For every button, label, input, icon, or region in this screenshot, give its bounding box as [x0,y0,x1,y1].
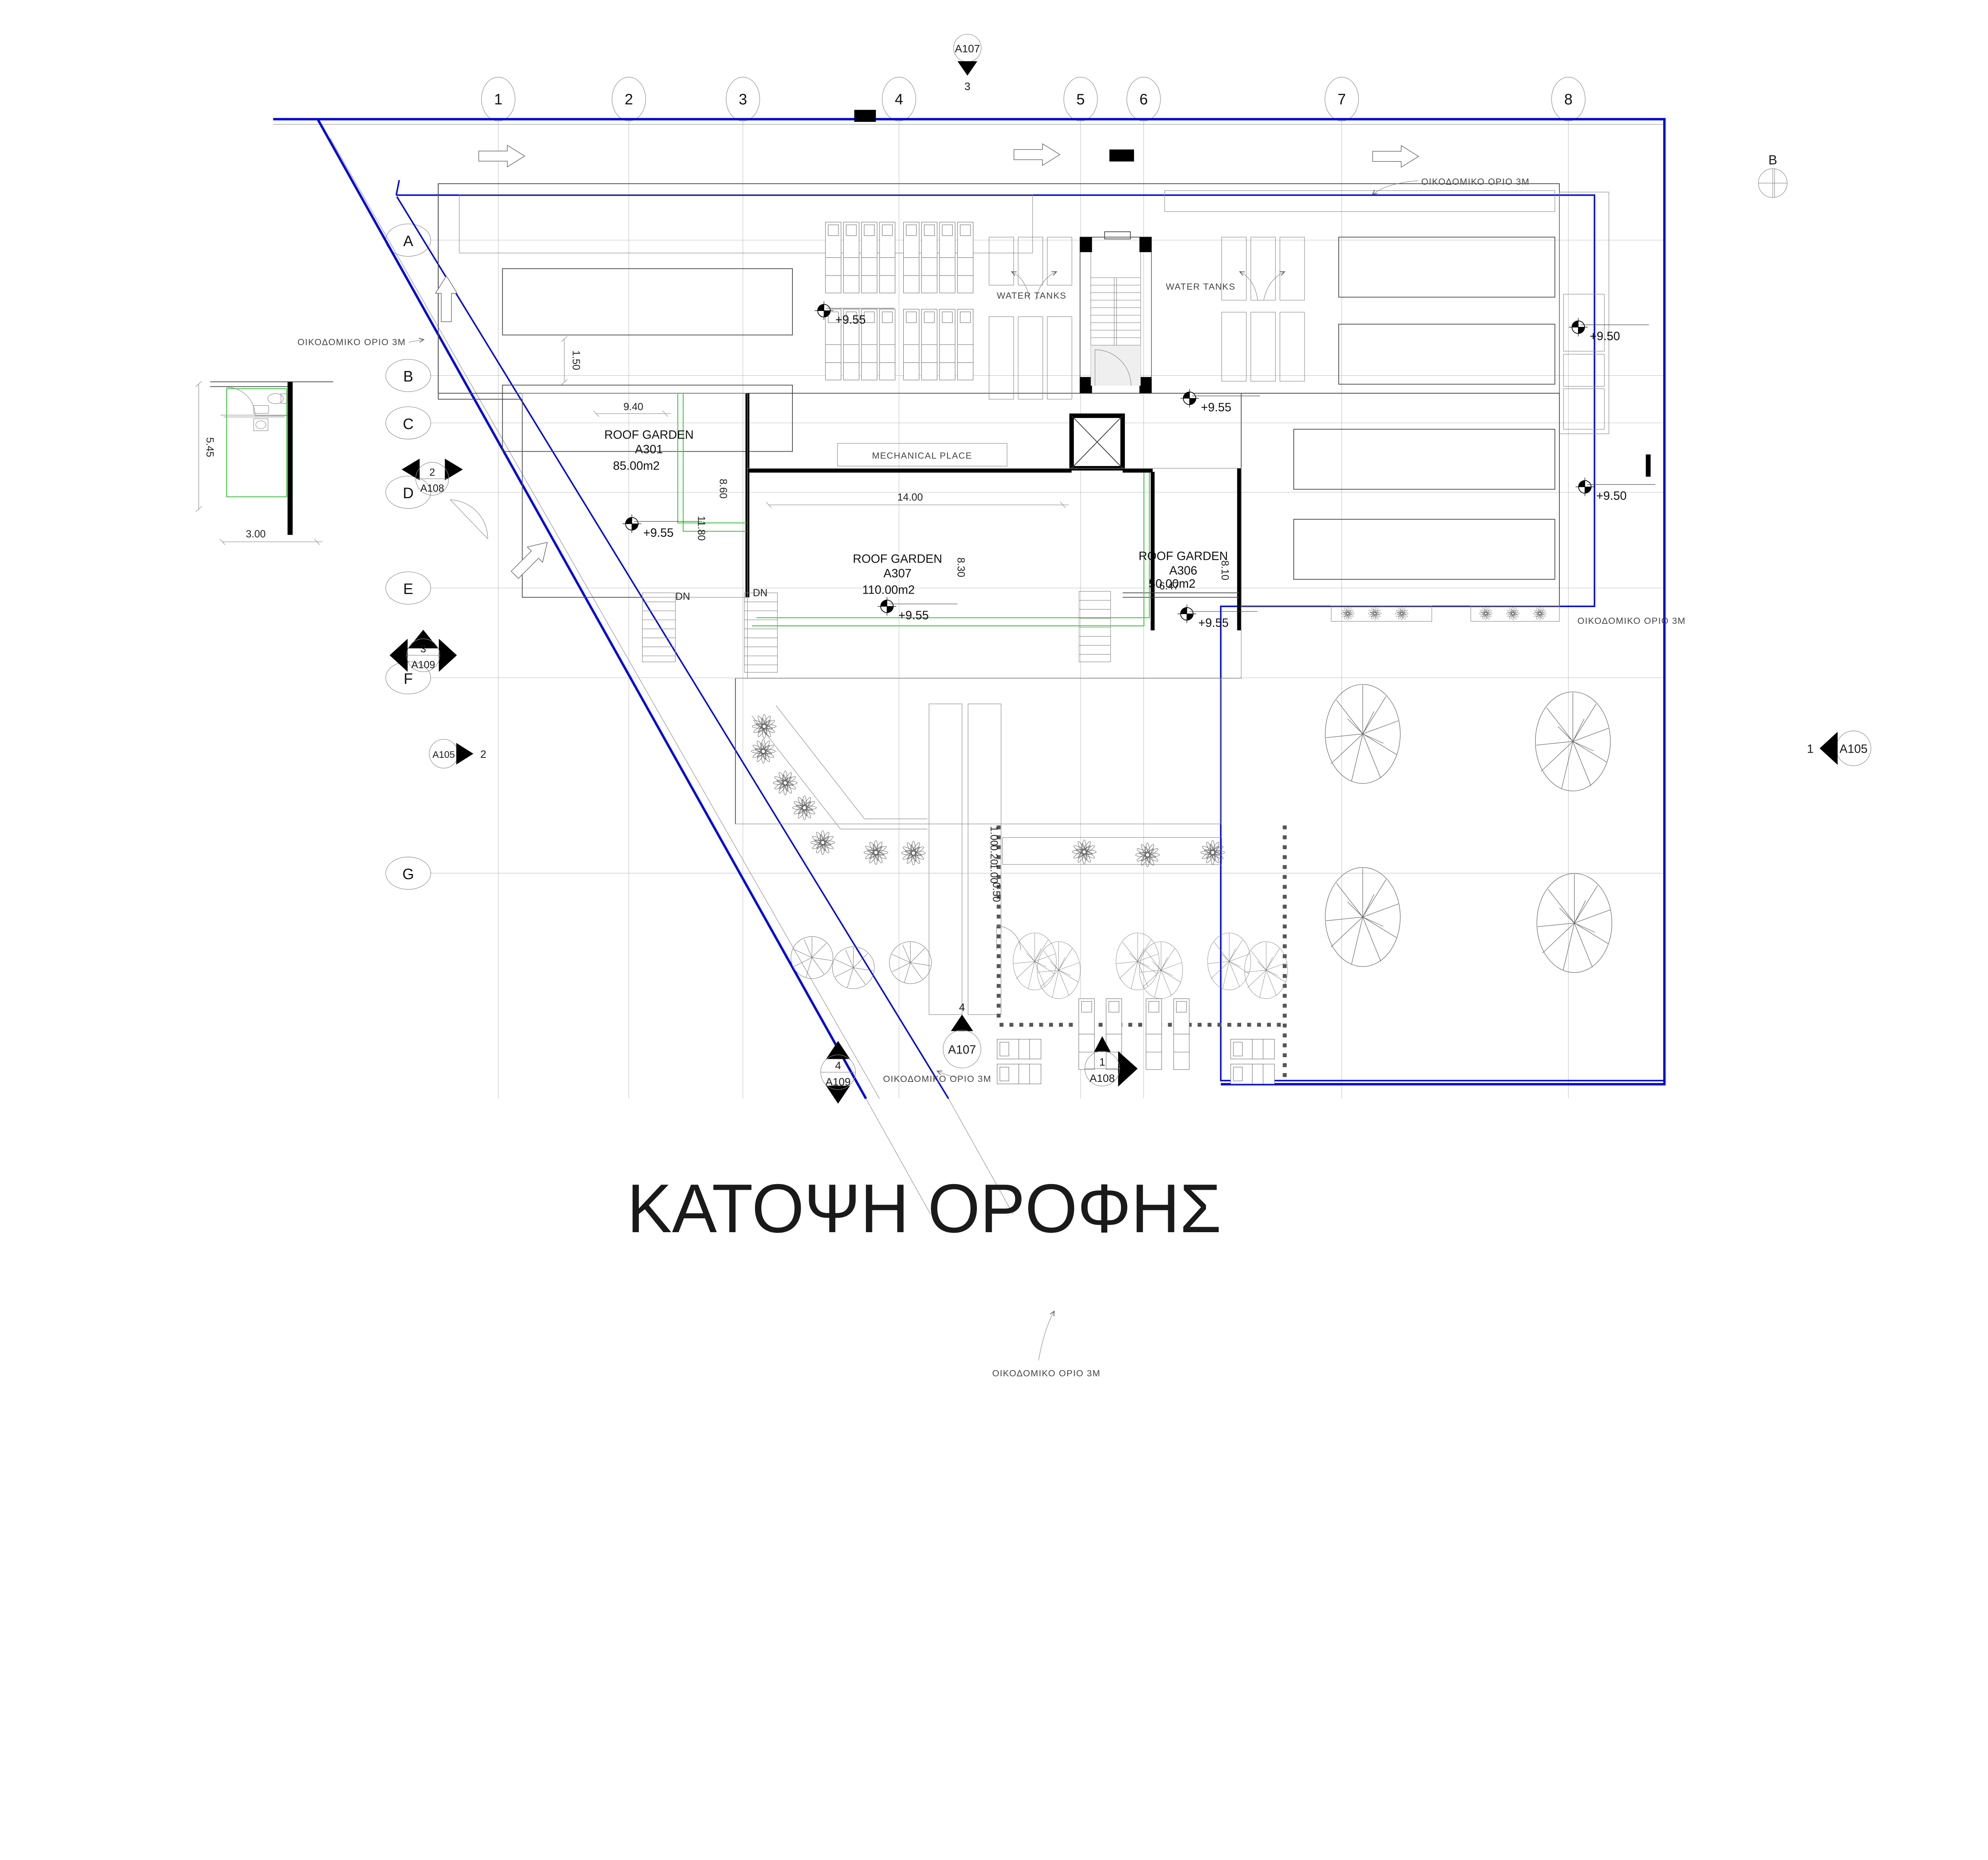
water-tanks-label-left: WATER TANKS [997,291,1066,301]
dim-020: 0.20 [988,845,999,865]
dim-940: 9.40 [623,401,643,412]
lower-terrace [736,678,1221,824]
water-tanks-right [1222,237,1305,381]
plant-icon [1368,607,1381,620]
dim-300: 3.00 [246,528,266,540]
garden-lounger [1231,1039,1274,1059]
boundary-note-text: ΟΙΚΟΔΟΜΙΚΟ ΟΡΙΟ 3Μ [297,337,406,347]
marker-num: 3 [420,643,426,654]
section-marker-a105-left: A105 2 [429,739,486,768]
section-marker-a107-bottom: A107 4 [943,1001,981,1068]
marker-code: A109 [412,660,435,671]
stair-small [744,593,777,672]
plant-icon [1479,607,1492,620]
garden-lounger [1079,999,1094,1070]
tree-icon [1037,942,1080,998]
direction-arrow-icon [1014,144,1060,165]
dim-1180: 11.80 [695,516,707,541]
water-tanks-label-right: WATER TANKS [1166,282,1235,292]
marker-num: 4 [959,1001,965,1013]
grid-col-label: 4 [895,91,903,108]
room-area-a307: 110.00m2 [862,583,915,596]
grid-bubble-col-8: 8 [1551,77,1585,121]
elevator-shaft [1072,416,1122,468]
grid-bubble-col-4: 4 [882,77,916,121]
marker-num: 3 [965,80,971,92]
north-indicator: B [1758,153,1787,198]
dim-050: 0.50 [990,882,1002,902]
tree-icon [1208,933,1251,990]
grid-row-label: B [403,368,413,385]
roof-loungers [825,222,973,380]
grid-row-label: E [403,581,413,597]
direction-arrow-icon [435,276,457,322]
marker-code: A108 [1089,1072,1114,1084]
water-tanks-left [989,237,1072,399]
section-marker-a109-left: 3 A109 [390,630,457,672]
room-name-a307: ROOF GARDEN [853,553,942,566]
section-marker-a105-right: A105 1 [1807,731,1871,766]
dim-150: 1.50 [570,350,581,370]
direction-arrow-icon [507,535,555,582]
solar-array [1294,519,1555,579]
setback-line-3m [396,195,1665,1081]
solar-array [1339,237,1555,297]
grid-layer: 1 2 3 4 5 6 7 8 A B C D E F G [386,77,1664,1099]
boundary-note-text: ΟΙΚΟΔΟΜΙΚΟ ΟΡΙΟ 3Μ [1577,616,1686,626]
garden-lounger [997,1039,1041,1059]
grid-bubble-col-6: 6 [1127,77,1161,121]
plant-icon [811,831,835,854]
grid-bubble-col-1: 1 [481,77,515,121]
dim-810: 8.10 [1219,560,1231,580]
skylight-box [1564,354,1605,386]
solar-array [1294,429,1555,489]
boundary-note-text: ΟΙΚΟΔΟΜΙΚΟ ΟΡΙΟ 3Μ [883,1074,992,1084]
stair-dn-label: DN [753,587,767,598]
elevation-marker: +9.55 [1180,389,1260,414]
louver-strip-right [1165,190,1555,212]
tree-icon [1325,868,1400,967]
plant-icon [1533,607,1546,620]
room-code-a307: A307 [883,567,912,580]
north-label: B [1769,153,1777,168]
elevation-marker: +9.55 [878,597,957,622]
elevation-value: +9.55 [1198,616,1229,629]
tree-icon [1140,942,1183,998]
drawing-title: ΚΑΤΟΨΗ ΟΡΟΦΗΣ [627,1170,1221,1247]
grid-bubble-col-5: 5 [1064,77,1098,121]
site-boundary-outer-diagonal [318,120,866,1099]
elevation-value: +9.50 [1596,489,1627,503]
marker-code: A107 [948,1043,976,1056]
tree-icon [1537,874,1612,973]
detail-room: 5.45 3.00 [196,381,333,545]
stair-core [1080,232,1151,393]
marker-num: 1 [1099,1056,1105,1068]
dim-100a: 1.00 [988,826,999,846]
plant-icon [864,841,888,864]
stair-dn-label: DN [676,591,690,602]
elevation-value: +9.55 [835,313,866,326]
room-area-a301: 85.00m2 [613,459,660,472]
plant-icon [1072,840,1096,864]
marker-code: A107 [955,42,980,54]
room-name-a306: ROOF GARDEN [1139,550,1228,563]
grid-bubble-col-2: 2 [612,77,646,121]
section-marker-a107-top: A107 3 [953,34,981,92]
grid-col-label: 3 [739,91,747,108]
grid-col-label: 8 [1564,91,1573,108]
grid-row-label: D [403,485,414,501]
elevation-value: +9.55 [643,526,674,540]
grid-col-label: 2 [625,91,633,108]
tree-icon [1536,692,1611,791]
solar-array [503,269,792,335]
elevation-marker: +9.55 [1178,604,1258,629]
plant-icon [1136,843,1159,867]
dim-860: 8.60 [717,479,728,499]
grid-row-label: C [403,415,414,432]
marker-num: 2 [429,467,435,478]
plant-icon [1506,607,1519,620]
green-garden-line [756,473,1149,618]
building-right-wing [1241,393,1559,606]
roof-plan-canvas: 1 2 3 4 5 6 7 8 A B C D E F G [0,0,1988,1404]
skylight-box [1564,389,1605,429]
plant-icon [773,771,797,795]
marker-code: A105 [433,749,455,760]
grid-col-label: 6 [1140,91,1148,108]
elevation-value: +9.55 [899,609,929,622]
dim-1400: 14.00 [897,492,923,503]
plant-icon [752,714,776,738]
boundary-note: ΟΙΚΟΔΟΜΙΚΟ ΟΡΙΟ 3Μ [297,337,424,347]
room-name-a301: ROOF GARDEN [604,429,694,442]
marker-num: 1 [1807,742,1814,755]
boundary-note: ΟΙΚΟΔΟΜΙΚΟ ΟΡΙΟ 3Μ [1577,616,1686,626]
grid-bubble-row-E: E [386,572,431,604]
grid-col-label: 7 [1338,91,1346,108]
elevation-marker: +9.50 [1576,478,1656,503]
tree-icon [1013,933,1056,990]
dim-830: 8.30 [955,557,966,577]
tree-icon [889,942,932,984]
direction-arrow-icon [479,145,525,167]
elevation-value: +9.55 [1201,401,1231,414]
plant-icon [792,796,816,819]
plant-icon [1341,607,1354,620]
grid-col-label: 1 [494,91,503,108]
elevation-marker: +9.55 [623,515,703,540]
elevation-value: +9.50 [1590,330,1620,343]
solar-array [1339,324,1555,384]
green-garden-line [678,394,746,523]
boundary-note: ΟΙΚΟΔΟΜΙΚΟ ΟΡΙΟ 3Μ [992,1311,1101,1378]
tree-icon [1244,942,1288,998]
garden-lounger [1231,1064,1274,1084]
section-marker-a109-bottom: 4 A109 [821,1041,856,1104]
boundary-note-text: ΟΙΚΟΔΟΜΙΚΟ ΟΡΙΟ 3Μ [1421,177,1530,186]
grid-row-label: F [404,670,413,687]
stair-small [1079,591,1110,662]
tree-icon [791,936,833,979]
room-code-a301: A301 [635,443,663,456]
marker-code: A109 [825,1076,850,1088]
roof-garden-a301 [522,393,747,597]
direction-arrow-icon [1373,146,1419,167]
plant-icon [901,841,925,865]
tree-icon [1116,933,1159,990]
dim-545: 5.45 [204,437,215,457]
roof-garden-terrace [747,468,1241,678]
green-garden-line [752,473,1144,626]
boundary-note-text: ΟΙΚΟΔΟΜΙΚΟ ΟΡΙΟ 3Μ [992,1368,1101,1378]
grid-bubble-row-B: B [386,359,431,392]
room-code-a306: A306 [1169,564,1198,577]
green-garden-line [683,394,746,531]
marker-num: 4 [835,1059,841,1072]
dim-647: 6.47 [1159,581,1179,592]
grid-bubble-col-7: 7 [1325,77,1359,121]
garden-lounger [1174,999,1189,1070]
landscape-layer [751,606,1612,1084]
grid-bubble-row-G: G [386,857,431,889]
boundary-note: ΟΙΚΟΔΟΜΙΚΟ ΟΡΙΟ 3Μ [1373,177,1530,194]
plant-icon [751,739,775,763]
marker-code: A105 [1840,742,1868,755]
tree-icon [1325,684,1400,783]
stair-small [643,593,676,662]
pergola-beam [929,704,962,1014]
grid-row-label: A [403,233,414,249]
marker-num: 2 [480,748,486,760]
garden-lounger [1146,999,1161,1070]
grid-row-label: G [402,866,414,882]
marker-code: A108 [420,483,444,494]
grid-col-label: 5 [1076,91,1085,108]
mechanical-place-label: MECHANICAL PLACE [872,451,972,461]
roof-overhang-right [1559,192,1609,434]
building-top-wing [438,184,1559,393]
grid-bubble-row-C: C [386,407,431,439]
dim-100b: 1.00 [988,864,999,883]
grid-bubble-col-3: 3 [726,77,760,121]
plant-icon [1395,607,1408,620]
boundary-note: ΟΙΚΟΔΟΜΙΚΟ ΟΡΙΟ 3Μ [883,1071,992,1084]
garden-lounger [997,1064,1041,1084]
